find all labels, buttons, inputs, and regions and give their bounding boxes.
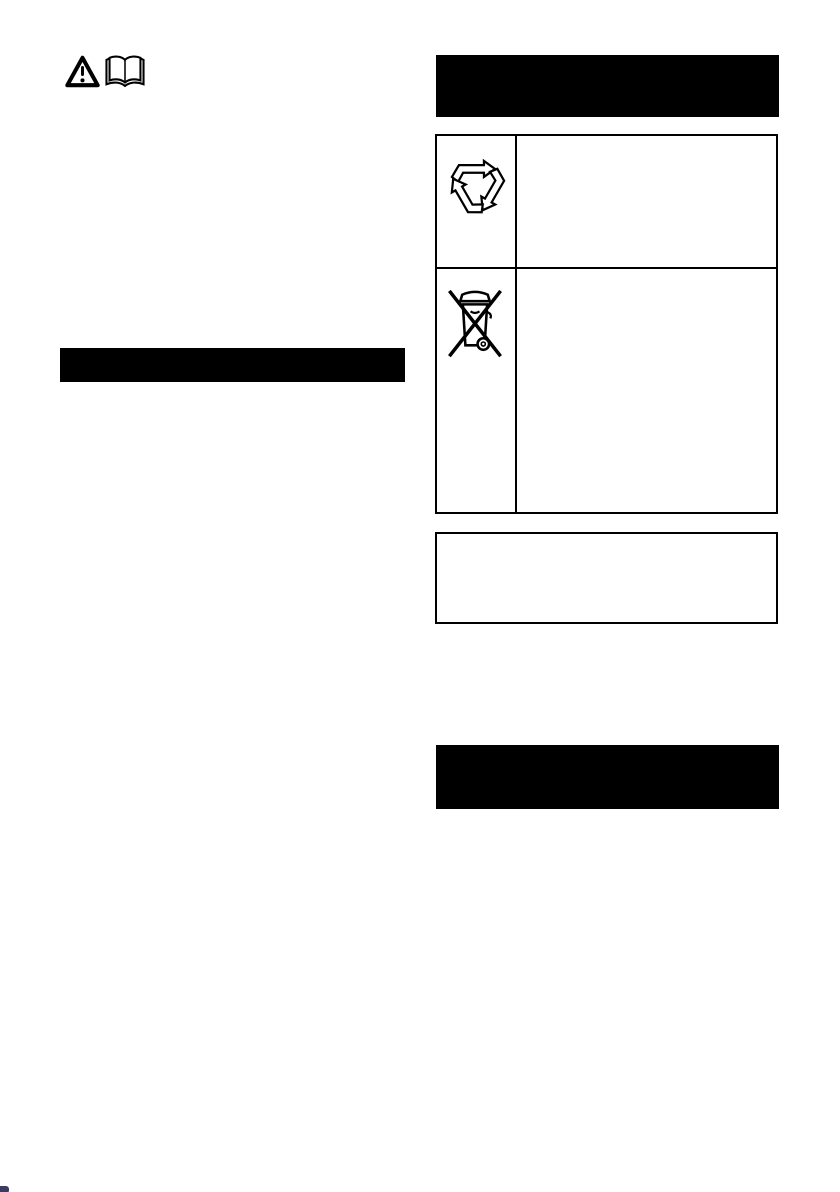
table-cell-weee-icon	[437, 269, 517, 512]
warning-triangle-icon	[64, 54, 101, 89]
manual-page	[0, 0, 840, 1192]
scan-artifact-mark	[0, 1186, 9, 1192]
left-section-heading-bar	[60, 348, 405, 382]
note-box	[435, 532, 778, 624]
right-bottom-section-heading-bar	[436, 745, 779, 809]
disposal-symbol-table	[435, 134, 778, 514]
table-cell-recycling-icon	[437, 136, 517, 269]
table-cell-recycling-text	[517, 136, 776, 269]
right-top-section-heading-bar	[436, 55, 779, 117]
recycling-symbol-icon	[445, 148, 509, 224]
open-book-icon	[102, 50, 148, 91]
table-cell-weee-text	[517, 269, 776, 512]
weee-crossed-out-bin-icon	[443, 277, 507, 365]
